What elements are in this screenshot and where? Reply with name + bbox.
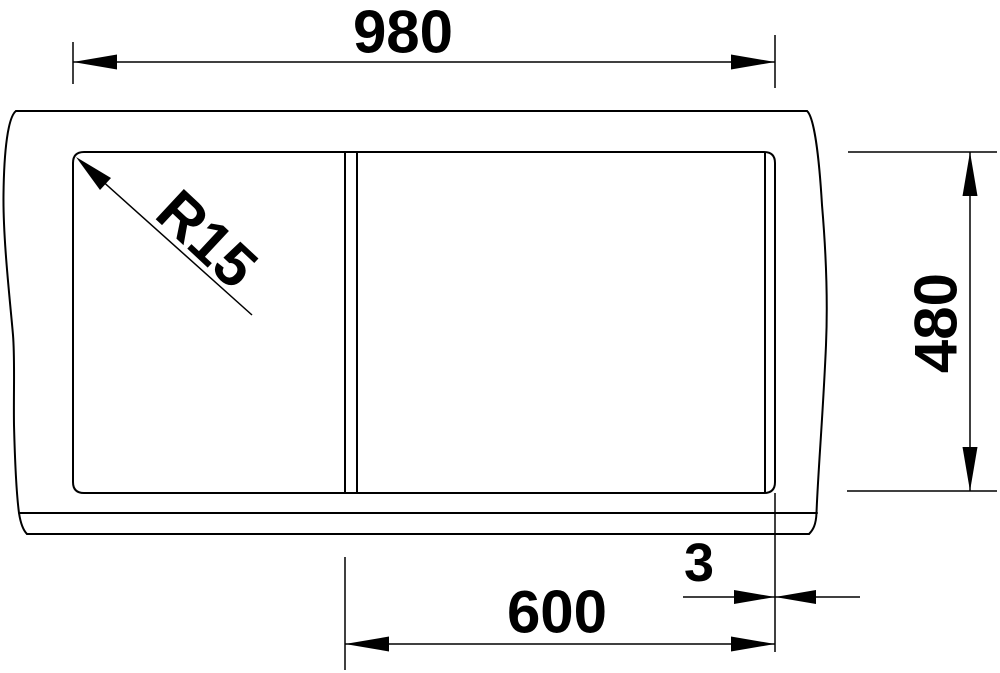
drawing-background <box>0 0 1000 673</box>
dim-bowl-section-label: 600 <box>507 579 607 646</box>
technical-drawing-page: 980 480 600 3 R15 <box>0 0 1000 673</box>
dim-rim-offset-label: 3 <box>684 533 714 593</box>
dim-overall-depth-label: 480 <box>903 273 970 373</box>
dim-overall-width-label: 980 <box>353 0 453 66</box>
sink-dimension-drawing: 980 480 600 3 R15 <box>0 0 1000 673</box>
